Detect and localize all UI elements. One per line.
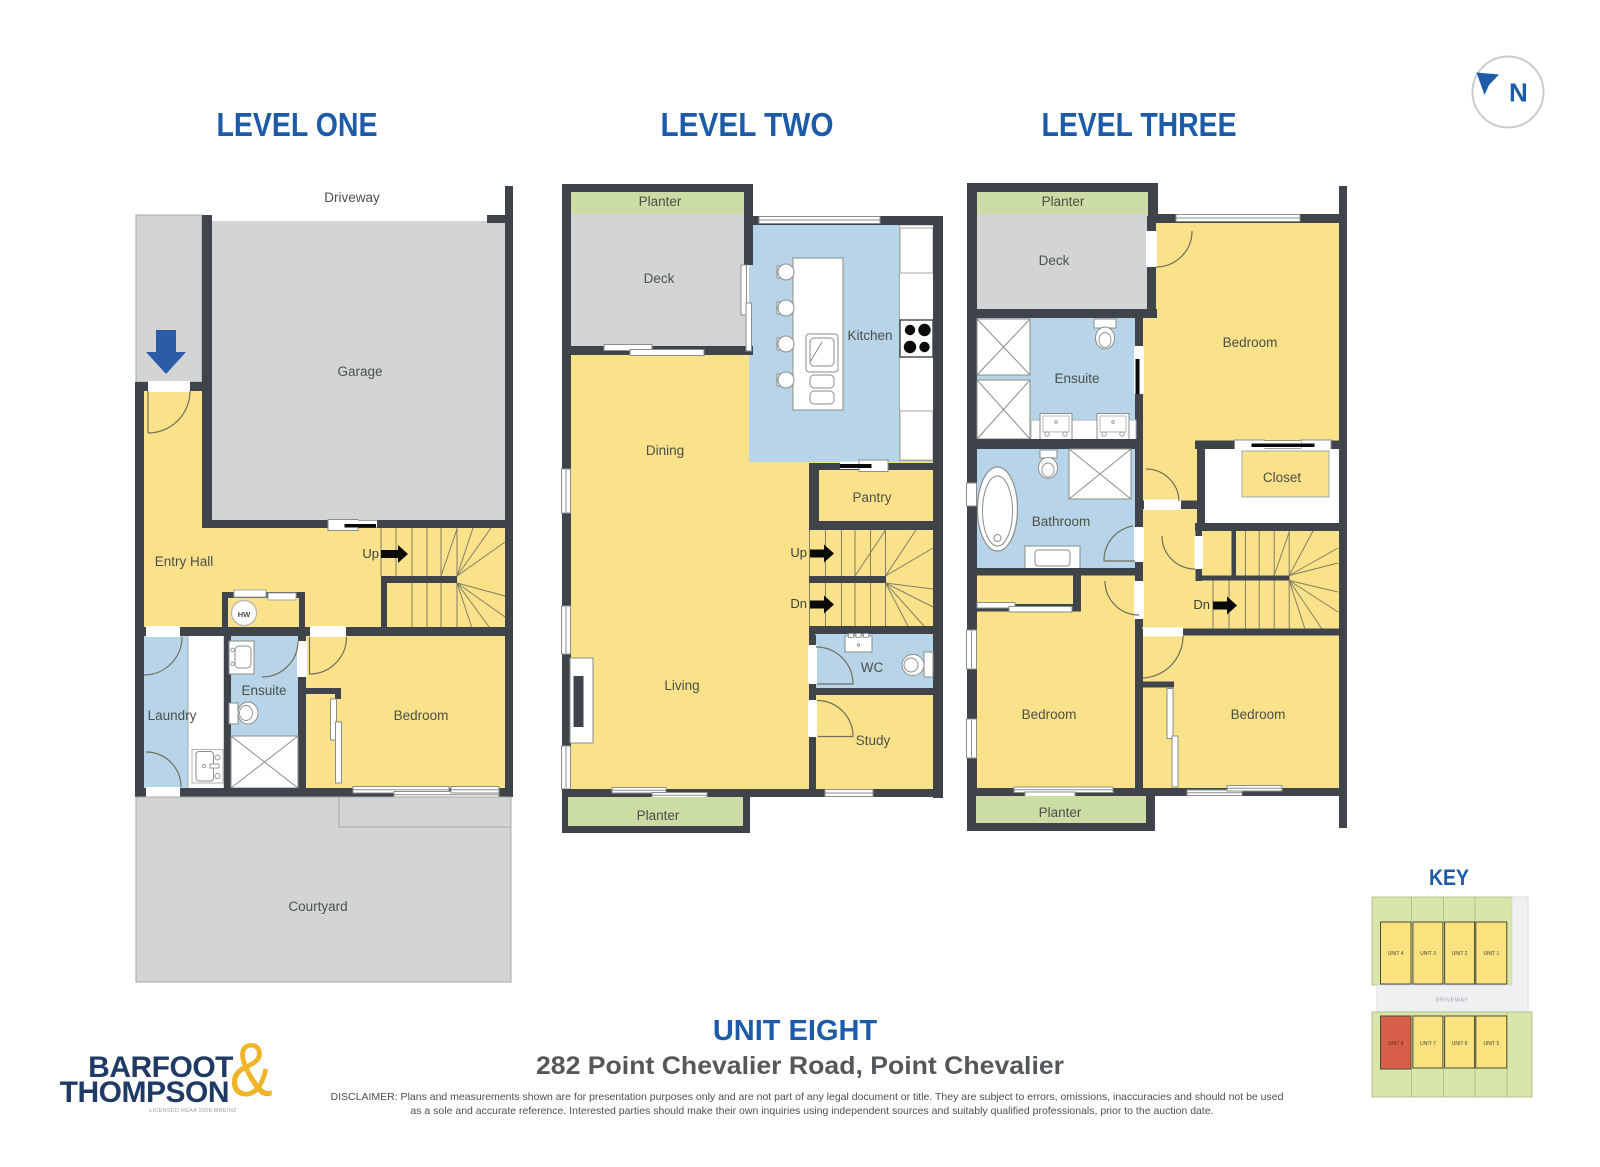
svg-text:Bedroom: Bedroom [1223,335,1278,350]
svg-text:Ensuite: Ensuite [241,683,286,698]
svg-text:LICENSED REAA 2008 MREINZ: LICENSED REAA 2008 MREINZ [149,1108,237,1114]
svg-text:as a sole and accurate referen: as a sole and accurate reference. Intere… [410,1105,1213,1117]
svg-text:Closet: Closet [1263,470,1302,485]
svg-text:Entry Hall: Entry Hall [155,554,214,569]
svg-text:Dn: Dn [1193,597,1210,612]
svg-text:Courtyard: Courtyard [288,899,347,914]
svg-text:UNIT 6: UNIT 6 [1452,1041,1468,1047]
svg-text:UNIT 8: UNIT 8 [1388,1041,1404,1047]
svg-text:Study: Study [856,733,891,748]
svg-text:Planter: Planter [1039,805,1082,820]
svg-text:UNIT 7: UNIT 7 [1420,1041,1436,1047]
svg-text:Ensuite: Ensuite [1054,371,1099,386]
svg-text:UNIT 3: UNIT 3 [1420,951,1436,957]
svg-text:Deck: Deck [1039,253,1070,268]
svg-text:Up: Up [790,545,807,560]
svg-text:DISCLAIMER: Plans and measurem: DISCLAIMER: Plans and measurements shown… [331,1091,1284,1103]
svg-text:WC: WC [861,660,884,675]
svg-text:282 Point Chevalier Road, Poin: 282 Point Chevalier Road, Point Chevalie… [536,1052,1064,1080]
svg-text:KEY: KEY [1429,865,1469,890]
svg-text:HW: HW [238,610,251,619]
svg-text:UNIT EIGHT: UNIT EIGHT [713,1015,878,1047]
svg-text:Planter: Planter [1042,194,1085,209]
svg-text:UNIT 1: UNIT 1 [1484,951,1500,957]
svg-text:UNIT 4: UNIT 4 [1388,951,1404,957]
svg-text:Dining: Dining [646,443,684,458]
svg-text:DRIVEWAY: DRIVEWAY [1436,998,1469,1004]
svg-text:Bedroom: Bedroom [1231,707,1286,722]
svg-text:&: & [230,1027,273,1112]
svg-text:Up: Up [362,546,379,561]
svg-text:UNIT 2: UNIT 2 [1452,951,1468,957]
svg-text:THOMPSON: THOMPSON [60,1076,229,1109]
svg-text:Planter: Planter [639,194,682,209]
svg-text:Planter: Planter [637,808,680,823]
svg-text:LEVEL THREE: LEVEL THREE [1042,106,1237,143]
svg-text:Living: Living [664,678,699,693]
svg-text:Deck: Deck [644,271,675,286]
svg-text:Bathroom: Bathroom [1032,514,1091,529]
svg-text:LEVEL ONE: LEVEL ONE [217,106,378,143]
svg-text:N: N [1509,78,1528,108]
svg-text:Laundry: Laundry [148,708,197,723]
svg-text:Bedroom: Bedroom [394,708,449,723]
svg-text:UNIT 5: UNIT 5 [1484,1041,1500,1047]
svg-text:Pantry: Pantry [852,490,891,505]
svg-text:Kitchen: Kitchen [847,328,892,343]
svg-text:LEVEL TWO: LEVEL TWO [661,106,834,143]
svg-text:Dn: Dn [790,596,807,611]
svg-text:Garage: Garage [337,364,382,379]
svg-text:Bedroom: Bedroom [1022,707,1077,722]
svg-text:Driveway: Driveway [324,190,380,205]
